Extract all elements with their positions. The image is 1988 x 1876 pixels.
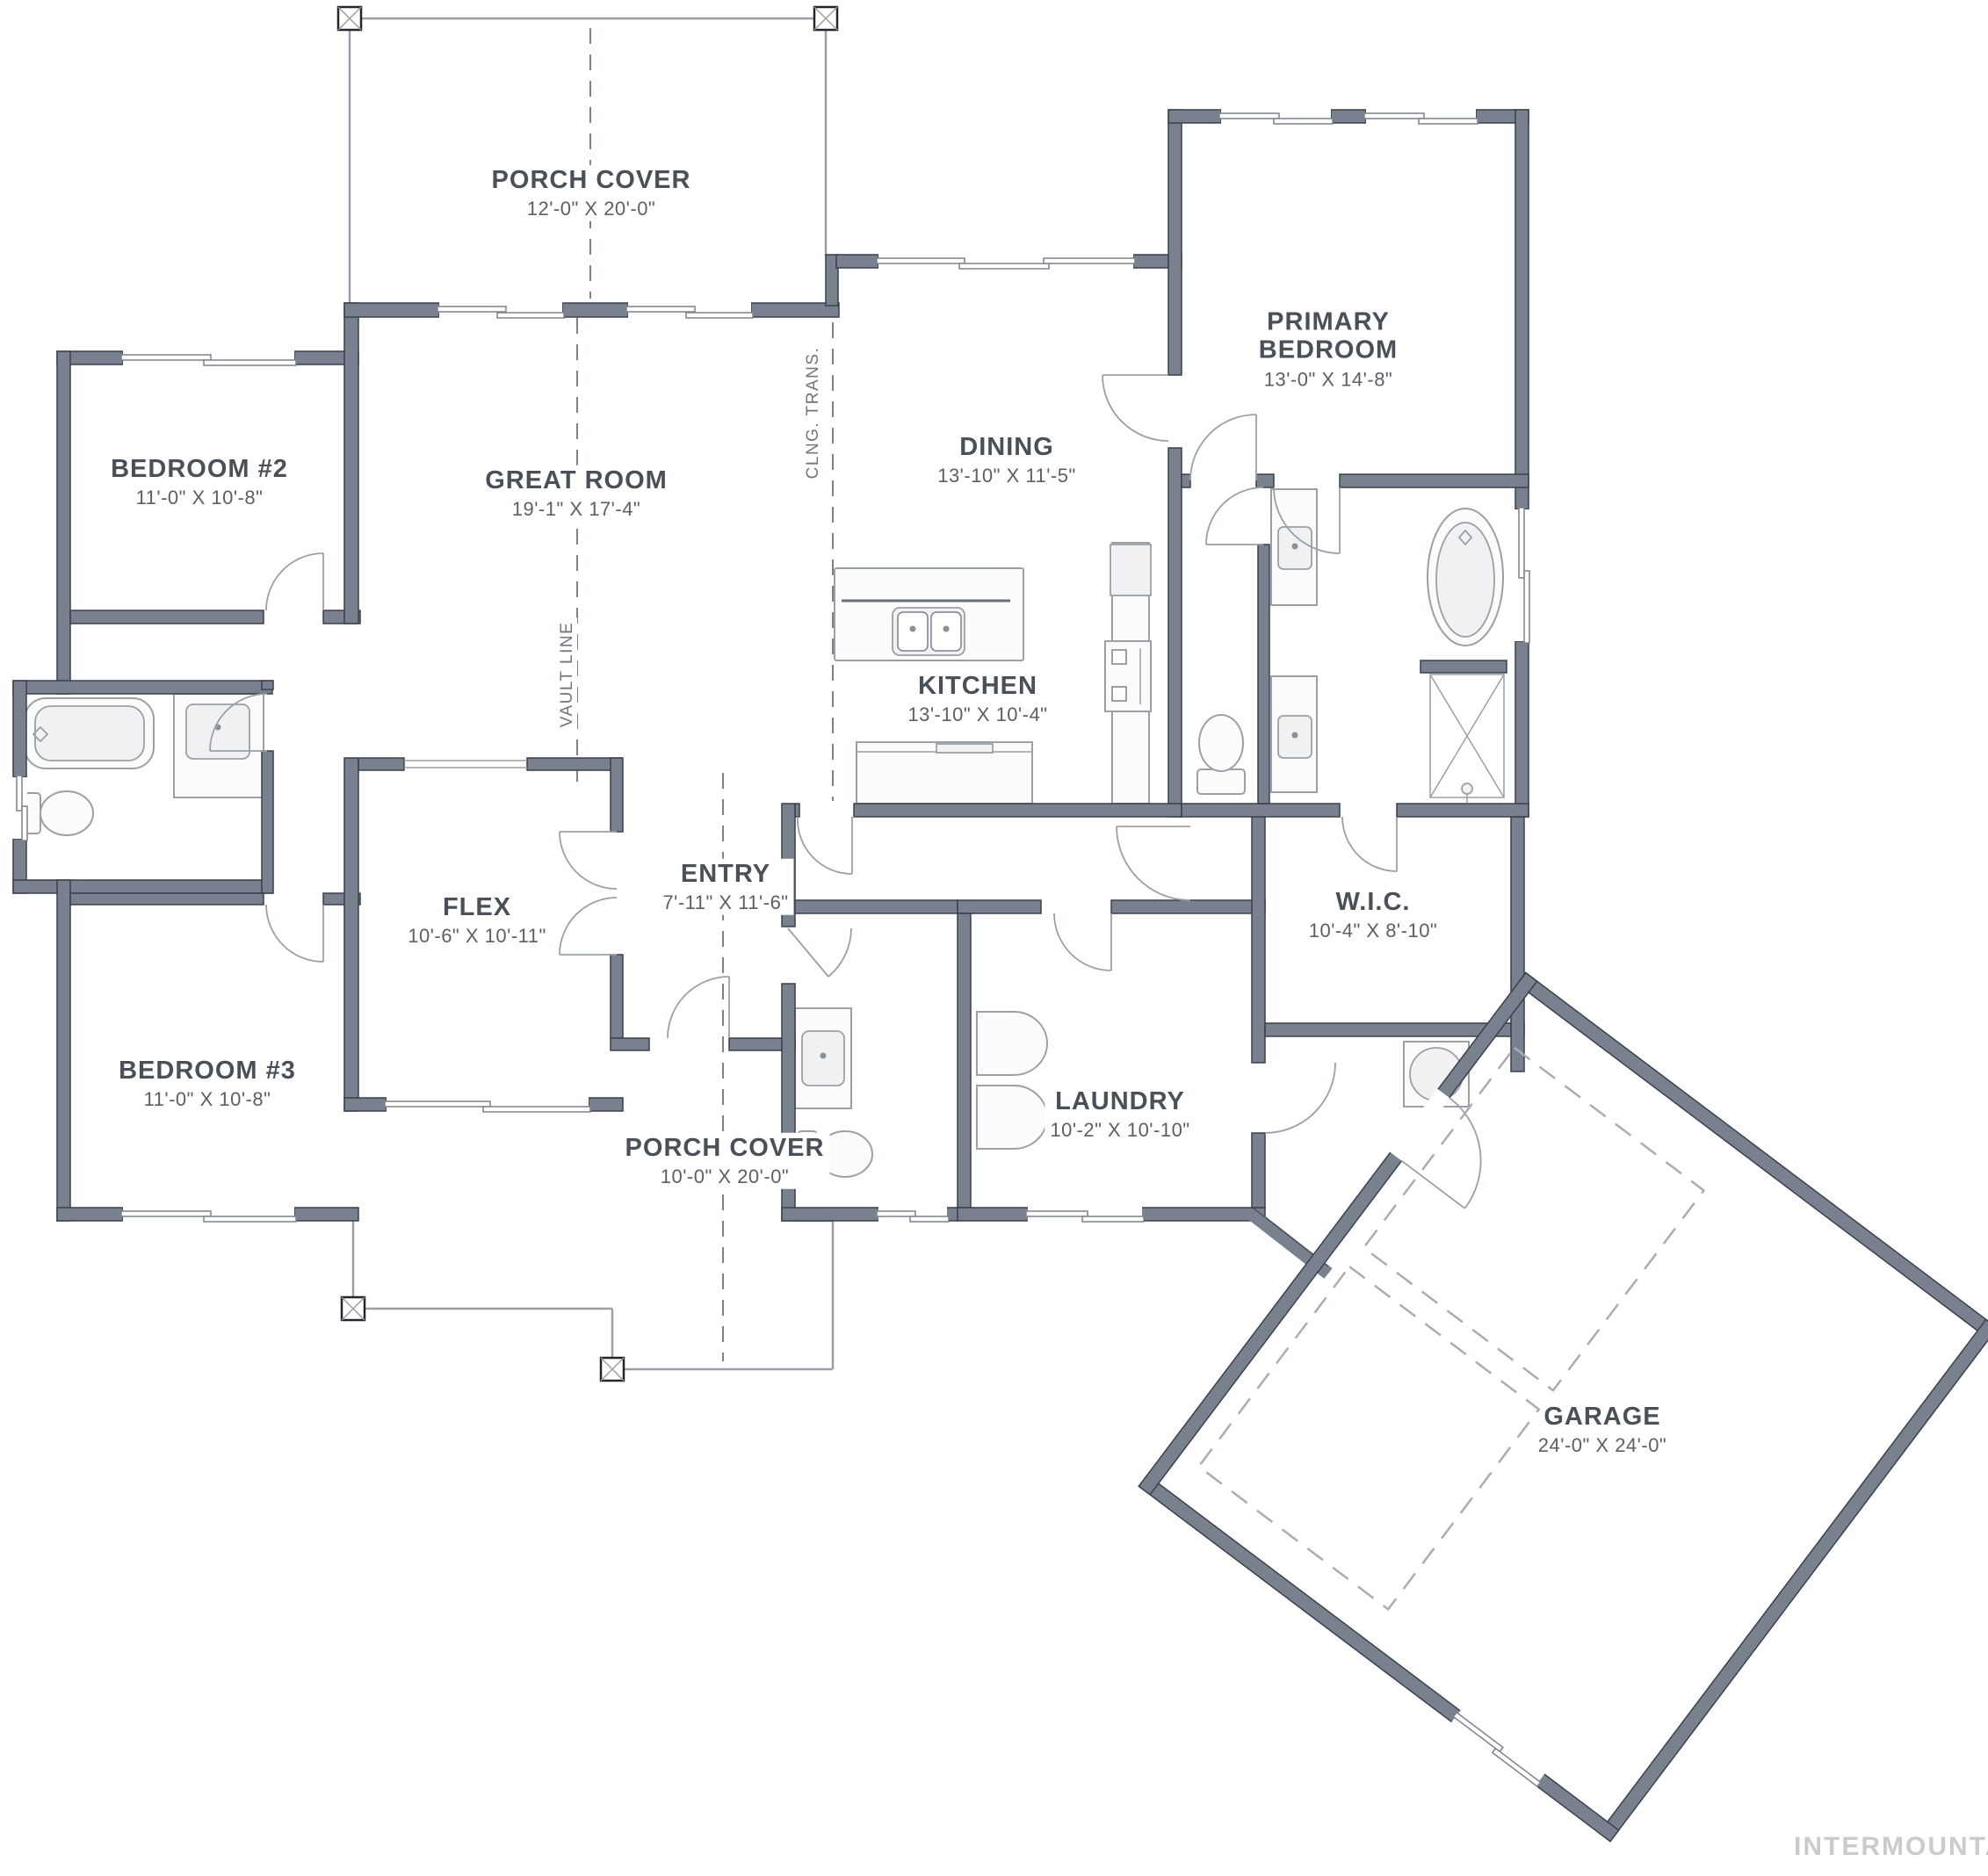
room-label-primary-bedroom: PRIMARY BEDROOM 13'-0" X 14'-8" xyxy=(1222,307,1435,393)
room-label-dining: DINING 13'-10" X 11'-5" xyxy=(932,432,1081,488)
room-name: W.I.C. xyxy=(1309,888,1437,916)
room-name: KITCHEN xyxy=(907,672,1047,700)
room-dims: 19'-1" X 17'-4" xyxy=(485,498,668,521)
room-dims: 13'-10" X 11'-5" xyxy=(937,465,1076,487)
room-label-great-room: GREAT ROOM 19'-1" X 17'-4" xyxy=(480,465,673,522)
floor-plan: PORCH COVER 12'-0" X 20'-0" GREAT ROOM 1… xyxy=(0,0,1988,1876)
room-label-laundry: LAUNDRY 10'-2" X 10'-10" xyxy=(1045,1086,1195,1143)
room-label-entry: ENTRY 7'-11" X 11'-6" xyxy=(657,859,793,915)
room-label-porch-cover-bottom: PORCH COVER 10'-0" X 20'-0" xyxy=(620,1133,830,1189)
room-label-bedroom-3: BEDROOM #3 11'-0" X 10'-8" xyxy=(113,1056,301,1112)
room-name: PORCH COVER xyxy=(625,1134,825,1162)
room-dims: 11'-0" X 10'-8" xyxy=(119,1088,296,1111)
room-dims: 10'-0" X 20'-0" xyxy=(625,1165,825,1188)
watermark: INTERMOUNTAIN xyxy=(1794,1832,1988,1862)
room-name: GREAT ROOM xyxy=(485,466,668,494)
room-label-garage: GARAGE 24'-0" X 24'-0" xyxy=(1533,1402,1672,1458)
room-dims: 13'-0" X 14'-8" xyxy=(1227,368,1429,391)
room-dims: 12'-0" X 20'-0" xyxy=(492,198,691,220)
room-label-bedroom-2: BEDROOM #2 11'-0" X 10'-8" xyxy=(105,454,293,510)
room-dims: 24'-0" X 24'-0" xyxy=(1538,1434,1666,1457)
room-name: PRIMARY BEDROOM xyxy=(1227,308,1429,365)
annotation-clng-trans: CLNG. TRANS. xyxy=(804,343,823,483)
room-dims: 10'-4" X 8'-10" xyxy=(1309,920,1437,942)
room-label-wic: W.I.C. 10'-4" X 8'-10" xyxy=(1304,887,1442,943)
room-name: BEDROOM #3 xyxy=(119,1057,296,1085)
room-name: ENTRY xyxy=(662,860,788,888)
room-label-porch-cover-top: PORCH COVER 12'-0" X 20'-0" xyxy=(487,165,697,221)
room-name: FLEX xyxy=(408,893,546,921)
room-label-kitchen: KITCHEN 13'-10" X 10'-4" xyxy=(902,671,1052,727)
room-dims: 10'-2" X 10'-10" xyxy=(1050,1119,1189,1142)
room-name: BEDROOM #2 xyxy=(111,455,288,483)
annotation-vault-line: VAULT LINE xyxy=(558,618,577,732)
room-name: GARAGE xyxy=(1538,1403,1666,1431)
room-dims: 11'-0" X 10'-8" xyxy=(111,487,288,509)
room-name: DINING xyxy=(937,433,1076,461)
labels-layer: PORCH COVER 12'-0" X 20'-0" GREAT ROOM 1… xyxy=(0,0,1988,1876)
room-dims: 10'-6" X 10'-11" xyxy=(408,925,546,948)
room-name: LAUNDRY xyxy=(1050,1087,1189,1115)
room-name: PORCH COVER xyxy=(492,166,691,194)
room-label-flex: FLEX 10'-6" X 10'-11" xyxy=(402,892,552,949)
room-dims: 13'-10" X 10'-4" xyxy=(907,703,1047,726)
room-dims: 7'-11" X 11'-6" xyxy=(662,891,788,914)
